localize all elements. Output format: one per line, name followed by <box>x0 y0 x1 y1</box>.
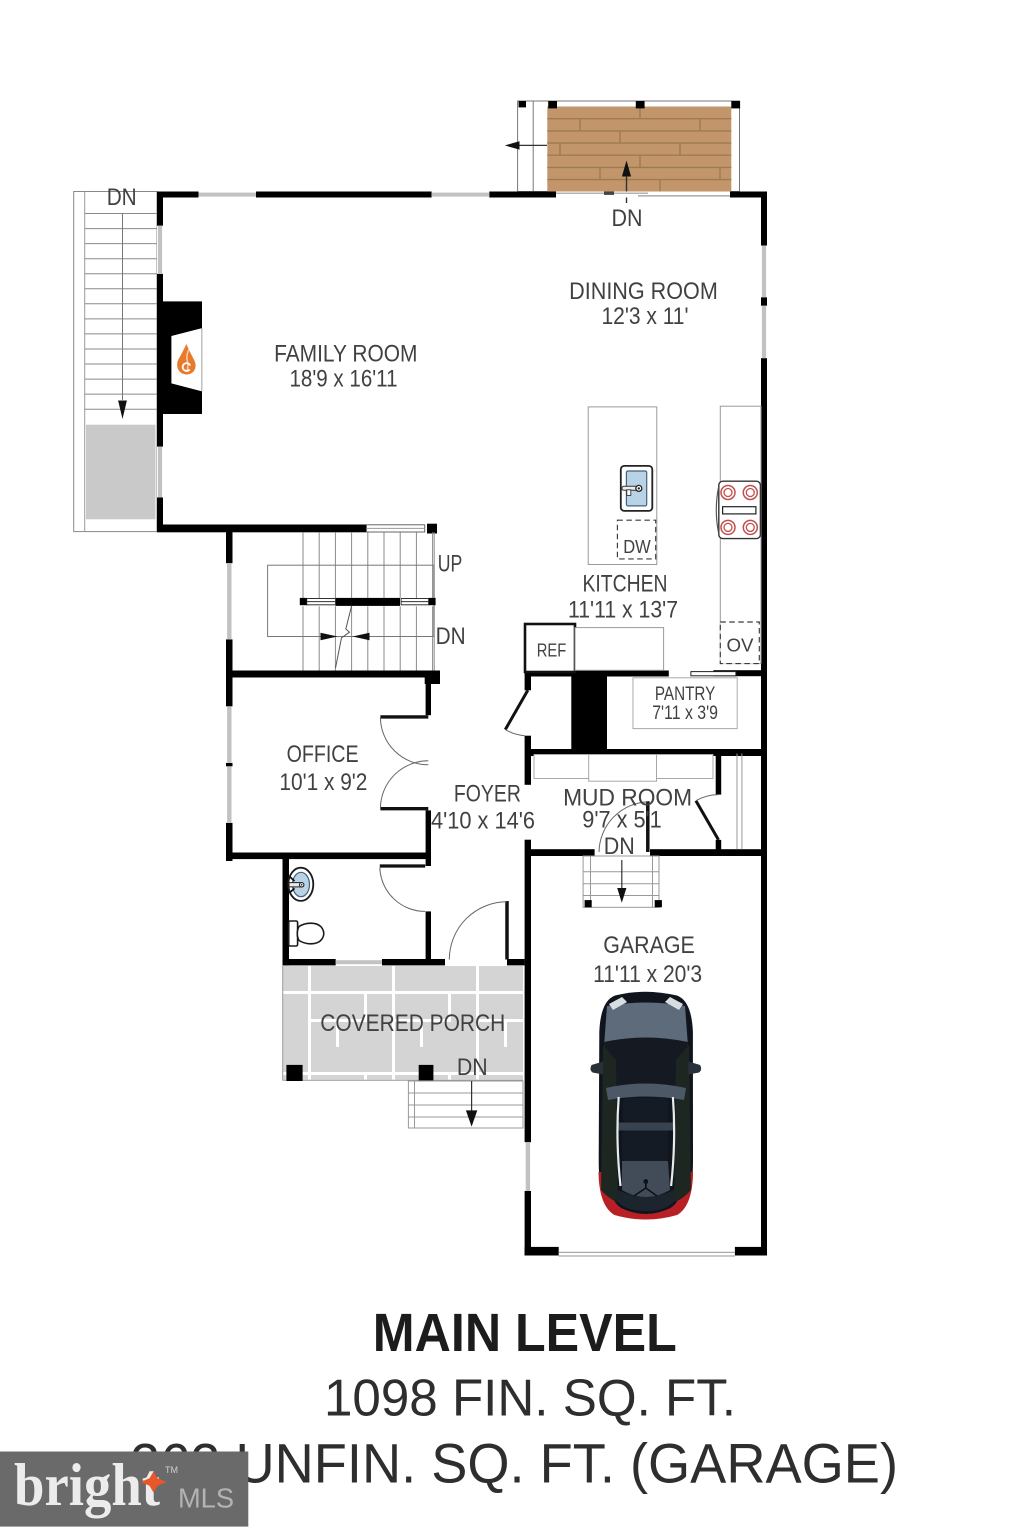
svg-text:FAMILY ROOM: FAMILY ROOM <box>274 342 417 368</box>
svg-text:18'9 x 16'11: 18'9 x 16'11 <box>290 366 398 392</box>
svg-text:KITCHEN: KITCHEN <box>583 572 668 598</box>
svg-text:1098 FIN. SQ. FT.: 1098 FIN. SQ. FT. <box>324 1370 736 1428</box>
svg-text:DN: DN <box>457 1055 488 1081</box>
svg-text:TM: TM <box>165 1465 178 1475</box>
svg-text:DN: DN <box>107 185 137 211</box>
svg-text:bright: bright <box>14 1452 160 1518</box>
svg-text:DN: DN <box>436 624 466 650</box>
svg-text:DINING ROOM: DINING ROOM <box>569 279 718 305</box>
svg-text:MAIN LEVEL: MAIN LEVEL <box>373 1304 677 1363</box>
svg-text:COVERED PORCH: COVERED PORCH <box>320 1011 505 1037</box>
svg-text:OV: OV <box>727 635 755 656</box>
svg-text:11'11 x 20'3: 11'11 x 20'3 <box>593 962 702 988</box>
svg-text:4'10 x 14'6: 4'10 x 14'6 <box>431 809 535 835</box>
svg-text:7'11 x 3'9: 7'11 x 3'9 <box>652 703 718 724</box>
svg-text:11'11 x 13'7: 11'11 x 13'7 <box>568 597 678 623</box>
svg-text:DN: DN <box>612 206 643 232</box>
svg-text:9'7 x 5'1: 9'7 x 5'1 <box>582 807 662 833</box>
svg-text:GARAGE: GARAGE <box>603 933 695 959</box>
svg-text:10'1 x 9'2: 10'1 x 9'2 <box>279 770 367 796</box>
svg-text:DN: DN <box>604 834 635 860</box>
svg-text:PANTRY: PANTRY <box>655 684 716 705</box>
svg-text:DW: DW <box>623 536 651 557</box>
svg-text:REF: REF <box>537 640 567 661</box>
svg-text:FOYER: FOYER <box>454 782 521 808</box>
svg-text:MLS: MLS <box>178 1483 234 1514</box>
svg-text:12'3 x 11': 12'3 x 11' <box>602 304 689 330</box>
svg-text:OFFICE: OFFICE <box>287 742 359 768</box>
svg-text:UP: UP <box>438 551 463 577</box>
